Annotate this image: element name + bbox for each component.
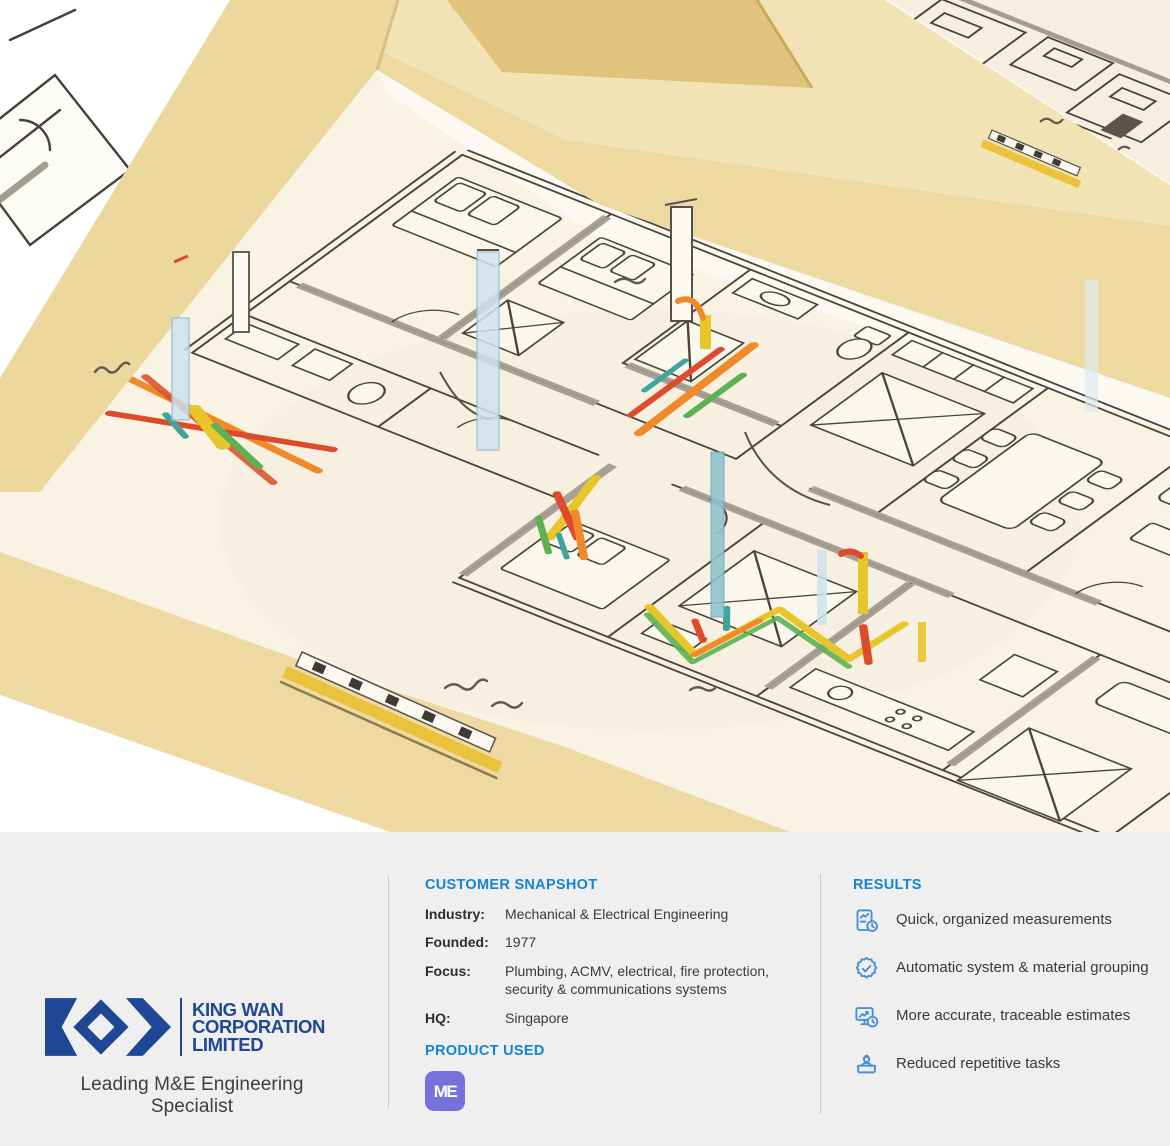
field-label: Founded: [425,933,505,951]
field-label: HQ: [425,1009,505,1027]
field-label: Focus: [425,962,505,999]
info-panel: KING WAN CORPORATION LIMITED Leading M&E… [0,832,1170,1146]
field-value: Plumbing, ACMV, electrical, fire protect… [505,962,787,999]
logo-line-3: LIMITED [192,1036,325,1054]
snapshot-row-industry: Industry: Mechanical & Electrical Engine… [425,905,795,923]
brand-block: KING WAN CORPORATION LIMITED Leading M&E… [45,998,339,1118]
result-text: More accurate, traceable estimates [896,1007,1130,1026]
result-item: Reduced repetitive tasks [853,1051,1163,1078]
field-label: Industry: [425,905,505,923]
case-study-page: KING WAN CORPORATION LIMITED Leading M&E… [0,0,1170,1146]
me-product-badge: ME [425,1071,465,1111]
vertical-divider-right [820,874,821,1114]
result-item: More accurate, traceable estimates [853,1003,1163,1030]
result-item: Quick, organized measurements [853,907,1163,934]
logo-wordmark: KING WAN CORPORATION LIMITED [192,1001,325,1054]
customer-snapshot-section: CUSTOMER SNAPSHOT Industry: Mechanical &… [425,877,795,1111]
result-text: Reduced repetitive tasks [896,1055,1060,1074]
snapshot-row-hq: HQ: Singapore [425,1009,795,1027]
floorplan-illustration [0,0,1170,832]
kingwan-logo-mark [45,998,171,1056]
brand-tagline: Leading M&E Engineering Specialist [45,1074,339,1118]
measurement-report-icon [853,907,880,934]
result-text: Automatic system & material grouping [896,959,1149,978]
field-value: 1977 [505,933,787,951]
estimate-monitor-icon [853,1003,880,1030]
result-item: Automatic system & material grouping [853,955,1163,982]
field-value: Singapore [505,1009,787,1027]
worker-board-icon [853,1051,880,1078]
kingwan-logo: KING WAN CORPORATION LIMITED [45,998,339,1056]
snapshot-row-focus: Focus: Plumbing, ACMV, electrical, fire … [425,962,795,999]
snapshot-heading: CUSTOMER SNAPSHOT [425,877,795,893]
svg-text:ME: ME [434,1082,458,1101]
vertical-divider-left [388,876,389,1108]
field-value: Mechanical & Electrical Engineering [505,905,787,923]
badge-check-icon [853,955,880,982]
results-section: RESULTS Quick, organized measurements Au… [853,877,1163,1099]
me-badge-monogram: ME [428,1074,462,1108]
results-heading: RESULTS [853,877,1163,893]
snapshot-row-founded: Founded: 1977 [425,933,795,951]
logo-divider [180,998,182,1056]
result-text: Quick, organized measurements [896,911,1112,930]
product-used-heading: PRODUCT USED [425,1043,795,1059]
